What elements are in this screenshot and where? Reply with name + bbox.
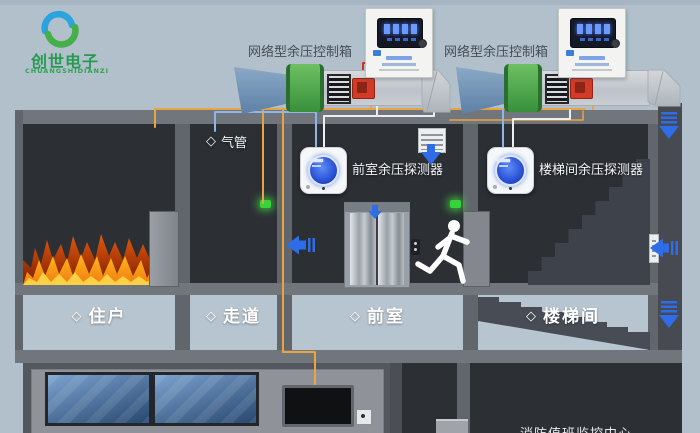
room-label-text: 楼梯间: [543, 307, 600, 327]
airflow-left-arrow-icon: [650, 239, 678, 258]
diamond-bullet-icon: ◇: [350, 309, 362, 324]
logo-swirl-icon: [39, 10, 81, 48]
room-label-corridor: ◇走道: [190, 302, 277, 327]
diamond-bullet-icon: ◇: [526, 309, 538, 324]
pipe-label-text: 气管: [221, 136, 247, 151]
pressure-control-system-diagram: 创世电子 CHUANGSHIDIANZI 消防值班监控中心: [0, 0, 700, 433]
bottom-room-partial-label: 消防值班监控中心: [470, 423, 682, 433]
room-label-residence: ◇住户: [23, 302, 175, 327]
air-pipe-label: ◇气管: [206, 132, 247, 151]
stair-detector-label: 楼梯间余压探测器: [539, 159, 643, 178]
diamond-bullet-icon: ◇: [72, 309, 84, 324]
front-detector-label: 前室余压探测器: [352, 159, 443, 178]
airflow-left-arrow-icon: [286, 236, 315, 255]
control-box-left-label: 网络型余压控制箱: [238, 41, 352, 60]
logo-subtitle: CHUANGSHIDIANZI: [25, 67, 105, 75]
room-label-text: 住户: [89, 307, 127, 327]
airflow-down-arrow-icon: [659, 301, 679, 328]
room-label-stairwell: ◇楼梯间: [478, 302, 648, 327]
running-person-icon: [413, 217, 477, 287]
logo: 创世电子 CHUANGSHIDIANZI: [25, 6, 115, 78]
elevator-down-arrow-icon: [368, 205, 382, 219]
diamond-bullet-icon: ◇: [206, 134, 216, 149]
control-box-right-label: 网络型余压控制箱: [443, 41, 548, 60]
room-label-text: 走道: [223, 307, 261, 327]
airflow-down-arrow-icon: [659, 112, 679, 139]
room-label-text: 前室: [367, 307, 405, 327]
diamond-bullet-icon: ◇: [206, 309, 218, 324]
room-label-frontroom: ◇前室: [292, 302, 463, 327]
